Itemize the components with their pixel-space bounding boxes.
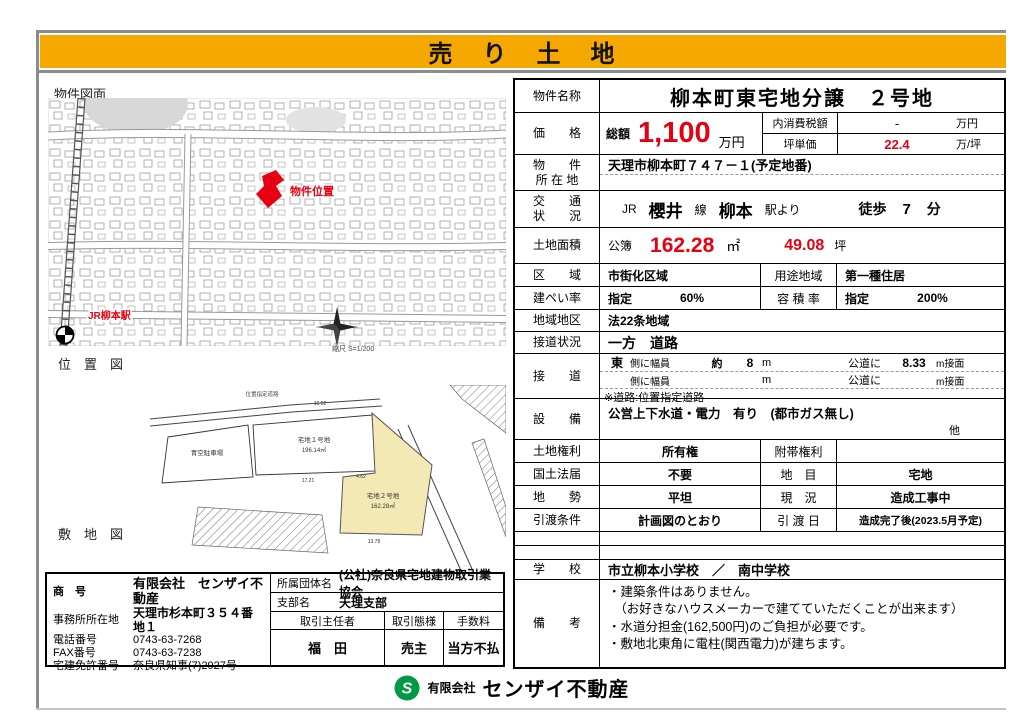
transport-value: JR 櫻井 線 柳本 駅より 徒歩 7 分 (600, 191, 1004, 227)
remarks-cell: ・建築条件はありません。 （お好きなハウスメーカーで建てていただくことが出来ます… (600, 580, 1004, 667)
utilities-cell: 公営上下水道・電力 有り (都市ガス無し) 他 (600, 399, 1004, 439)
transport-line-name: 櫻井 (649, 197, 683, 222)
row-remarks: 備 考 ・建築条件はありません。 （お好きなハウスメーカーで建てていただくことが… (515, 580, 1004, 667)
transport-station: 柳本 (719, 197, 753, 222)
company-name-label: 商 号 (53, 586, 133, 599)
unit-price-value: 22.4 (838, 137, 956, 152)
association-row: 所属団体名 (公社)奈良県宅地建物取引業協会 (271, 574, 503, 593)
delivery-terms-label: 引渡条件 (515, 509, 600, 531)
transport-label-line1: 交 通 (533, 194, 581, 209)
left-margin-rule (36, 30, 39, 710)
row-property-name: 物件名称 柳本町東宅地分譲 ２号地 (515, 80, 1004, 113)
national-land-act-label: 国土法届 (515, 463, 600, 485)
transport-minutes: 7 (902, 201, 910, 218)
location-label: 物 件 所 在 地 (515, 155, 600, 190)
price-label: 価 格 (515, 113, 600, 154)
top-rule (36, 30, 1006, 33)
agent-header-row: 取引主任者 取引態様 手数料 (271, 612, 503, 630)
road2-width-text: 側に幅員 (630, 373, 696, 388)
transport-line-suffix: 線 (695, 201, 707, 218)
frontage-status-value: 一方 道路 (600, 332, 1004, 353)
lot1-area: 196.14㎡ (302, 446, 326, 454)
location-label-line2: 所 在 地 (536, 173, 579, 188)
station-icon (57, 327, 74, 344)
company-license-row: 宅建免許番号 奈良県知事(7)2927号 (53, 660, 264, 673)
station-label: JR柳本駅 (88, 309, 132, 322)
fee-value: 当方不払 (444, 630, 503, 665)
district-value: 法22条地域 (600, 310, 1004, 331)
row-coverage-ratio: 建ぺい率 指定 60% 容 積 率 指定 200% (515, 287, 1004, 310)
tax-unit: 万円 (956, 115, 1004, 131)
zoning-label: 区 域 (515, 264, 600, 286)
row-zoning: 区 域 市街化区域 用途地域 第一種住居 (515, 264, 1004, 287)
remarks-line: ・敷地北東角に電柱(関西電力)が建ちます。 (608, 636, 996, 653)
company-name-value: 有限会社 センザイ不動産 (133, 577, 264, 607)
bcr-prefix: 指定 (608, 290, 632, 307)
footer-company-prefix: 有限会社 (427, 679, 475, 696)
remarks-line: ・建築条件はありません。 (608, 584, 996, 601)
pond-shape-2 (286, 107, 346, 133)
footer-company-name: センザイ不動産 (483, 673, 630, 702)
dimension-top: 16.02 (314, 401, 327, 407)
fax-label: FAX番号 (53, 647, 133, 660)
land-category-label: 地 目 (761, 463, 837, 485)
area-m2-unit: ㎡ (726, 236, 740, 256)
area-register-prefix: 公簿 (608, 237, 632, 254)
property-name-label: 物件名称 (515, 80, 600, 112)
company-name-row: 商 号 有限会社 センザイ不動産 (53, 577, 264, 607)
company-info-table: 商 号 有限会社 センザイ不動産 事務所所在地 天理市杉本町３５４番地１ 電話番… (45, 572, 505, 667)
row-blank-1 (515, 532, 1004, 546)
bottom-rule (36, 708, 1006, 710)
transaction-type-header: 取引態様 (385, 612, 444, 629)
national-land-act-value: 不要 (600, 463, 761, 485)
row-district: 地域地区 法22条地域 (515, 310, 1004, 332)
branch-value: 天理支部 (339, 594, 497, 611)
row-location: 物 件 所 在 地 天理市柳本町７４７－１(予定地番) (515, 155, 1004, 191)
license-label: 宅建免許番号 (53, 660, 133, 673)
row-schools: 学 校 市立柳本小学校 ／ 南中学校 (515, 560, 1004, 580)
fax-value: 0743-63-7238 (133, 647, 264, 660)
compass-rose-icon (316, 306, 358, 348)
property-location-label: 物件位置 (290, 184, 334, 198)
remarks-line: ・水道分担金(162,500円)のご負担が必要です。 (608, 619, 996, 636)
row-frontage-status: 接道状況 一方 道路 (515, 332, 1004, 354)
tax-value: - (838, 116, 956, 131)
row-land-area: 土地面積 公簿 162.28 ㎡ 49.08 坪 (515, 228, 1004, 264)
far-cell: 指定 200% (837, 287, 1004, 309)
company-office-row: 事務所所在地 天理市杉本町３５４番地１ (53, 607, 264, 635)
location-value-line2 (600, 175, 1004, 190)
delivery-date-value: 造成完了後(2023.5月予定) (837, 509, 1004, 531)
property-name-value: 柳本町東宅地分譲 ２号地 (600, 80, 1004, 112)
utilities-other: 他 (608, 422, 996, 438)
svg-text:S: S (402, 680, 413, 697)
schools-value: 市立柳本小学校 ／ 南中学校 (600, 560, 1004, 579)
row-price: 価 格 総額 1,100 万円 内消費税額 - 万円 坪単価 22.4 万/坪 (515, 113, 1004, 155)
area-tsubo-unit: 坪 (834, 237, 846, 254)
road1-frontage-value: 8.33 (892, 356, 936, 370)
price-prefix: 総額 (606, 125, 630, 142)
banner-bottom-rule (36, 70, 1006, 73)
map-scale-label: 縮尺 S=1/200 (332, 344, 374, 354)
zoning-value: 市街化区域 (600, 264, 761, 286)
current-status-label: 現 況 (761, 486, 837, 508)
dimension-mid: 4.62 (356, 474, 366, 480)
use-district-label: 用途地域 (761, 264, 837, 286)
agent-value: 福 田 (271, 630, 385, 665)
company-left-block: 商 号 有限会社 センザイ不動産 事務所所在地 天理市杉本町３５４番地１ 電話番… (47, 574, 271, 665)
road1-public-text: 公道に (848, 355, 892, 371)
road-frontage-cell: 東 側に幅員 約 8 m 公道に 8.33 m接面 側に幅員 m 公道に (600, 354, 1004, 398)
delivery-terms-value: 計画図のとおり (600, 509, 761, 531)
branch-row: 支部名 天理支部 (271, 593, 503, 612)
company-tel-row: 電話番号 0743-63-7268 (53, 634, 264, 647)
row-terrain: 地 勢 平坦 現 況 造成工事中 (515, 486, 1004, 509)
location-map-title: 位 置 図 (58, 354, 123, 373)
designated-road-label: 位置指定道路 (245, 390, 279, 398)
attached-rights-value (837, 440, 1004, 462)
price-main-cell: 総額 1,100 万円 (600, 113, 763, 154)
road1-width-value: 8 (738, 356, 762, 370)
schools-label: 学 校 (515, 560, 600, 579)
site-plan: 位置指定道路 16.02 青空駐車場 宅地１号地 196.14㎡ 宅地２号地 1… (150, 385, 506, 575)
location-cell: 天理市柳本町７４７－１(予定地番) (600, 155, 1004, 190)
road-frontage-line2: 側に幅員 m 公道に m接面 (600, 372, 1004, 389)
price-unit: 万円 (719, 132, 745, 151)
bcr-label: 建ぺい率 (515, 287, 600, 309)
blank-value-1 (600, 532, 1004, 545)
area-m2-value: 162.28 (650, 234, 714, 258)
parking-label: 青空駐車場 (191, 448, 224, 457)
road2-public-text: 公道に (848, 372, 892, 388)
association-label: 所属団体名 (277, 575, 339, 591)
tel-value: 0743-63-7268 (133, 634, 264, 647)
transport-jr: JR (622, 202, 637, 216)
lot2-area: 162.28㎡ (371, 502, 395, 510)
row-unit-price: 坪単価 22.4 万/坪 (763, 134, 1004, 154)
company-logo-icon: S (394, 675, 420, 701)
transaction-type-value: 売主 (385, 630, 444, 665)
tel-label: 電話番号 (53, 634, 133, 647)
road (48, 245, 506, 247)
row-transport: 交 通 状 況 JR 櫻井 線 柳本 駅より 徒歩 7 分 (515, 191, 1004, 228)
row-tax: 内消費税額 - 万円 (763, 113, 1004, 134)
land-rights-label: 土地権利 (515, 440, 600, 462)
property-details-table: 物件名称 柳本町東宅地分譲 ２号地 価 格 総額 1,100 万円 内消費税額 … (513, 78, 1006, 669)
site-map-title: 敷 地 図 (58, 524, 123, 543)
land-area-label: 土地面積 (515, 228, 600, 263)
bcr-cell: 指定 60% (600, 287, 761, 309)
unit-price-label: 坪単価 (763, 134, 838, 154)
utilities-label: 設 備 (515, 399, 600, 439)
agent-value-row: 福 田 売主 当方不払 (271, 630, 503, 665)
cadastral-map: 物件位置 JR柳本駅 (48, 98, 506, 346)
road1-width-unit: m (762, 357, 848, 369)
lot1-parcel (253, 415, 376, 475)
row-national-land-act: 国土法届 不要 地 目 宅地 (515, 463, 1004, 486)
row-land-rights: 土地権利 所有権 附帯権利 (515, 440, 1004, 463)
utilities-value: 公営上下水道・電力 有り (都市ガス無し) (608, 403, 996, 422)
location-value: 天理市柳本町７４７－１(予定地番) (600, 155, 1004, 175)
row-road-frontage: 接 道 東 側に幅員 約 8 m 公道に 8.33 m接面 側に幅員 (515, 354, 1004, 399)
far-prefix: 指定 (845, 290, 869, 307)
terrain-value: 平坦 (600, 486, 761, 508)
blank-label-1 (515, 532, 600, 545)
frontage-status-label: 接道状況 (515, 332, 600, 353)
road1-approx: 約 (696, 355, 738, 371)
delivery-date-label: 引 渡 日 (761, 509, 837, 531)
road1-frontage-unit: m接面 (936, 355, 986, 370)
price-value: 1,100 (638, 117, 711, 150)
land-category-value: 宅地 (837, 463, 1004, 485)
fee-header: 手数料 (444, 612, 503, 629)
dimension-lot1: 17.21 (302, 478, 315, 484)
district-label: 地域地区 (515, 310, 600, 331)
price-sub-table: 内消費税額 - 万円 坪単価 22.4 万/坪 (763, 113, 1004, 154)
lot2-name: 宅地２号地 (367, 491, 400, 500)
road-frontage-label: 接 道 (515, 354, 600, 398)
terrain-label: 地 勢 (515, 486, 600, 508)
flyer-title: 売 り 土 地 (429, 34, 618, 69)
row-utilities: 設 備 公営上下水道・電力 有り (都市ガス無し) 他 (515, 399, 1004, 440)
unit-price-unit: 万/坪 (956, 136, 1004, 152)
road2-width-unit: m (762, 374, 848, 386)
transport-walk: 徒歩 (858, 199, 886, 219)
blank-value-2 (600, 546, 1004, 559)
road1-width-text: 側に幅員 (630, 355, 696, 370)
company-right-block: 所属団体名 (公社)奈良県宅地建物取引業協会 支部名 天理支部 取引主任者 取引… (271, 574, 503, 665)
land-area-value: 公簿 162.28 ㎡ 49.08 坪 (600, 228, 1004, 263)
office-label: 事務所所在地 (53, 614, 133, 627)
license-value: 奈良県知事(7)2927号 (133, 660, 264, 673)
neighbor-building-hatched (192, 507, 328, 553)
row-blank-2 (515, 546, 1004, 560)
land-rights-value: 所有権 (600, 440, 761, 462)
location-label-line1: 物 件 (533, 158, 581, 173)
transport-minutes-unit: 分 (927, 199, 941, 219)
flyer-title-banner: 売 り 土 地 (40, 35, 1006, 68)
tax-label: 内消費税額 (763, 113, 838, 133)
blank-label-2 (515, 546, 600, 559)
remarks-label: 備 考 (515, 580, 600, 667)
road-frontage-line1: 東 側に幅員 約 8 m 公道に 8.33 m接面 (600, 354, 1004, 372)
use-district-value: 第一種住居 (837, 264, 1004, 286)
far-label: 容 積 率 (761, 287, 837, 309)
road (48, 133, 506, 136)
transport-from: 駅より (765, 201, 801, 218)
land-sale-flyer: 売 り 土 地 物件図面 (0, 0, 1024, 724)
area-tsubo-value: 49.08 (784, 237, 824, 255)
lot1-name: 宅地１号地 (298, 435, 331, 444)
road1-direction: 東 (604, 354, 630, 371)
transport-label: 交 通 状 況 (515, 191, 600, 227)
current-status-value: 造成工事中 (837, 486, 1004, 508)
road2-frontage-unit: m接面 (936, 373, 986, 388)
attached-rights-label: 附帯権利 (761, 440, 837, 462)
dimension-bottom: 13.78 (368, 539, 381, 545)
footer-company-logo: S 有限会社 センザイ不動産 (0, 673, 1024, 702)
remarks-line: （お好きなハウスメーカーで建てていただくことが出来ます） (608, 601, 996, 618)
office-value: 天理市杉本町３５４番地１ (133, 607, 264, 635)
bcr-value: 60% (632, 291, 752, 305)
far-value: 200% (869, 291, 996, 305)
company-fax-row: FAX番号 0743-63-7238 (53, 647, 264, 660)
agent-header: 取引主任者 (271, 612, 385, 629)
branch-label: 支部名 (277, 594, 339, 610)
row-delivery: 引渡条件 計画図のとおり 引 渡 日 造成完了後(2023.5月予定) (515, 509, 1004, 532)
transport-label-line2: 状 況 (533, 209, 581, 224)
